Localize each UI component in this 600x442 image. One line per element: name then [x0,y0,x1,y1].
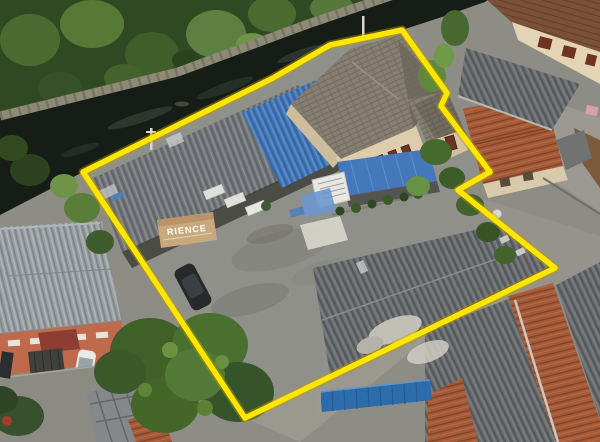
aerial-photo: RIENCE [0,0,600,442]
scene-svg: RIENCE [0,0,600,442]
